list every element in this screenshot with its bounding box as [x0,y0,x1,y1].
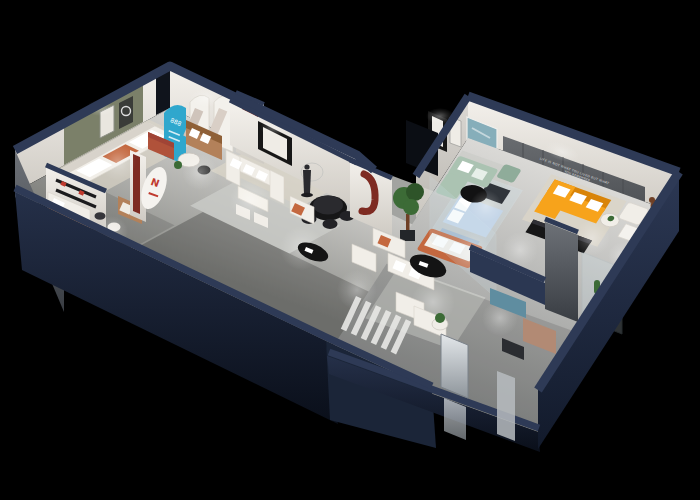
tree-pot [400,230,415,241]
potted-plant [174,161,182,169]
glow-panel [497,371,515,441]
tree-foliage [406,183,424,201]
dark-chair [323,219,338,229]
tree-foliage [403,199,419,215]
floorplan-svg: 3D isometric cutaway floor plan render o… [0,0,700,500]
spotlight-pool [230,180,270,220]
sculpture-head [304,164,309,169]
spotlight-pool [470,190,502,222]
tall-mirror [441,334,468,398]
spotlight-pool [182,154,218,190]
spotlight-pool [574,220,610,256]
sculpture-base [301,193,313,197]
sculpture-body [303,170,311,194]
spotlight-pool [100,144,136,180]
pillar-face [545,222,578,322]
dark-pillar [545,222,578,322]
showroom-render: 3D isometric cutaway floor plan render o… [0,0,700,500]
potted-plant [435,313,445,323]
table-top [313,196,343,215]
tree-trunk [406,214,410,232]
